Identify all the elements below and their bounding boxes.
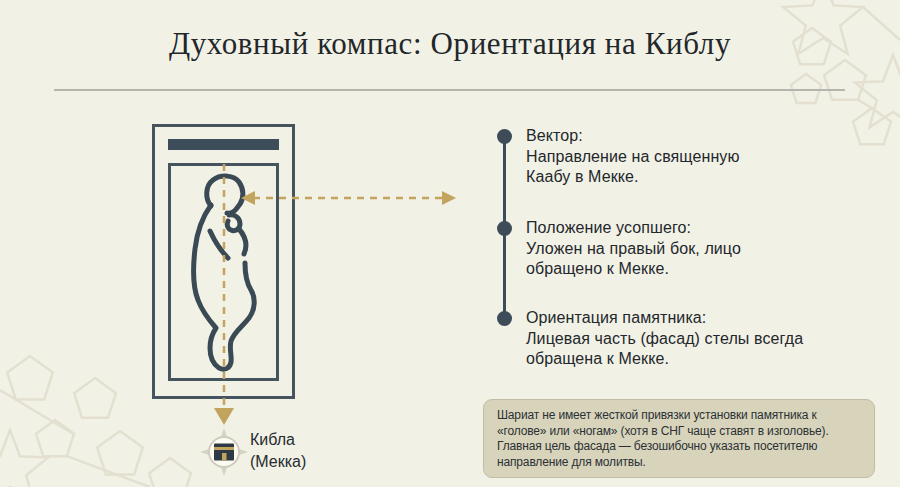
point-heading: Вектор:: [526, 126, 740, 147]
bullet-dot-monument: [497, 311, 512, 326]
qibla-label-line2: (Мекка): [250, 451, 306, 473]
headstone-bar: [168, 139, 279, 150]
qibla-label: Кибла (Мекка): [250, 429, 306, 473]
point-line: обращено к Мекке.: [526, 259, 741, 280]
point-heading: Ориентация памятника:: [526, 308, 803, 329]
point-vector: Вектор: Направление на священную Каабу в…: [526, 126, 740, 188]
qibla-down-arrow: [214, 408, 234, 425]
note-line: Главная цель фасада — безошибочно указат…: [497, 439, 861, 455]
slide: Духовный компас: Ориентация на Киблу: [0, 0, 900, 487]
point-line: Уложен на правый бок, лицо: [526, 239, 741, 260]
note-line: направление для молитвы.: [497, 455, 861, 471]
bullet-dot-position: [497, 221, 512, 236]
point-heading: Положение усопшего:: [526, 218, 741, 239]
note-line: «голове» или «ногам» (хотя в СНГ чаще ст…: [497, 424, 861, 440]
point-line: обращена к Мекке.: [526, 349, 803, 370]
point-deceased-position: Положение усопшего: Уложен на правый бок…: [526, 218, 741, 280]
kaaba-compass-icon: [200, 428, 248, 476]
note-line: Шариат не имеет жесткой привязки установ…: [497, 408, 861, 424]
point-line: Направление на священную: [526, 147, 740, 168]
qibla-direction-double-arrow: [241, 191, 456, 205]
point-monument-orientation: Ориентация памятника: Лицевая часть (фас…: [526, 308, 803, 370]
point-line: Каабу в Мекке.: [526, 167, 740, 188]
bullet-dot-vector: [497, 129, 512, 144]
islamic-pattern-ornament-top-right: [730, 0, 900, 160]
sharia-note-box: Шариат не имеет жесткой привязки установ…: [483, 399, 875, 478]
grave-orientation-diagram: [0, 0, 480, 487]
qibla-label-line1: Кибла: [250, 429, 306, 451]
point-line: Лицевая часть (фасад) стелы всегда: [526, 329, 803, 350]
